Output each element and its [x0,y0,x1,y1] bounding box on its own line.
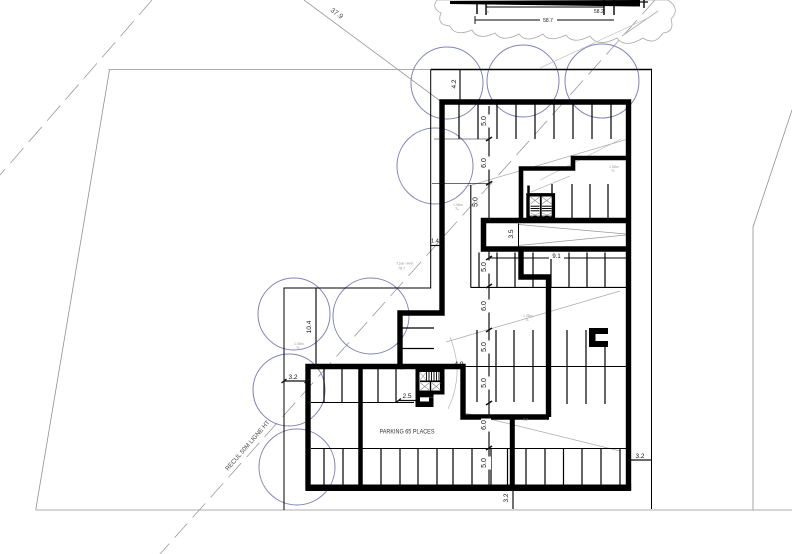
svg-text:2.5: 2.5 [402,393,411,400]
svg-text:4.9: 4.9 [454,361,463,368]
svg-text:6: 6 [487,10,489,14]
svg-text:5a: 5a [487,5,491,9]
svg-text:9.1: 9.1 [552,254,561,260]
svg-text:TL: TL [525,318,529,322]
svg-text:6.0: 6.0 [481,301,488,311]
svg-text:3.2: 3.2 [503,493,510,502]
svg-text:5.0: 5.0 [481,116,488,126]
svg-text:TL: TL [296,346,300,350]
svg-text:TL: TL [455,207,459,211]
svg-text:1.4: 1.4 [431,239,439,245]
svg-text:5.0: 5.0 [473,197,480,207]
svg-text:PARKING 65 PLACES: PARKING 65 PLACES [380,429,435,436]
svg-text:58.7: 58.7 [543,18,553,24]
svg-text:5.0: 5.0 [481,378,488,388]
svg-text:5.0: 5.0 [481,458,488,468]
svg-text:58.2: 58.2 [594,9,604,15]
svg-text:5.0: 5.0 [481,262,488,272]
svg-text:3.5: 3.5 [508,229,515,238]
svg-text:TL: TL [611,169,615,173]
svg-text:T.par nivel: T.par nivel [396,262,413,266]
svg-text:3.2: 3.2 [635,453,644,460]
svg-text:6.0: 6.0 [481,420,488,430]
svg-text:3.2: 3.2 [288,374,297,381]
svg-text:5.0: 5.0 [481,342,488,352]
svg-text:4.2: 4.2 [451,79,458,88]
svg-text:3.2: 3.2 [523,418,528,422]
svg-text:6.0: 6.0 [481,158,488,168]
svg-text:78.7: 78.7 [398,267,405,271]
svg-text:10.4: 10.4 [306,320,313,333]
